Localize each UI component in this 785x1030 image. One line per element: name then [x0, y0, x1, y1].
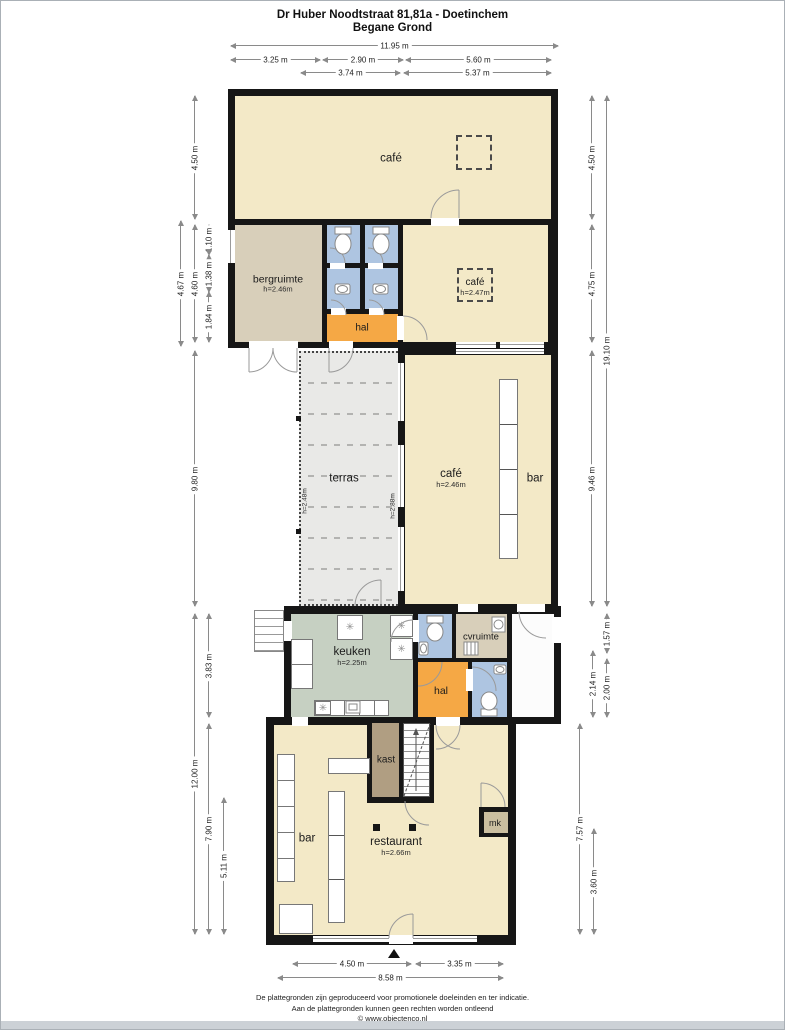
terras-post-2: [296, 529, 301, 534]
room-bath: [472, 662, 507, 717]
dim-left-terras: 9.80 m: [194, 351, 195, 606]
restaurant-column-2: [409, 824, 416, 831]
kitchen-counter-left: [291, 639, 313, 689]
dim-right-cafemid: 4.75 m: [591, 225, 592, 342]
door-gap-keuken-restaurant: [292, 717, 308, 726]
window-cafebar-left-3: [398, 527, 404, 591]
door-gap-corridor-right: [552, 617, 561, 643]
label-terras-height-left: h=2.48m: [302, 488, 309, 513]
page-title: Dr Huber Noodtstraat 81,81a - Doetinchem: [1, 9, 784, 21]
window-cafemid-bottom-2: [500, 342, 544, 348]
footer-disclaimer: De plattegronden zijn geproduceerd voor …: [1, 993, 784, 1025]
label-cvruimte: cvruimte: [463, 633, 499, 644]
corner-unit: [279, 904, 313, 934]
window-restaurant-front-2: [413, 936, 477, 942]
stove-icon: [390, 638, 413, 660]
dim-left-berg-outer: 4.67 m: [180, 221, 181, 346]
stove-icon: [390, 615, 413, 637]
dim-left-lower-total: 12.00 m: [194, 614, 195, 934]
door-gap-cafe-divider: [431, 218, 459, 226]
footer-line-1: De plattegronden zijn geproduceerd voor …: [1, 993, 784, 1004]
terras-post-1: [296, 416, 301, 421]
room-wc-right: [365, 225, 398, 263]
door-gap-corridor-ext: [517, 604, 545, 612]
dim-right-restaurant-inner: 3.60 m: [593, 829, 594, 934]
staircase-main: [403, 723, 430, 797]
door-gap-hal-terras: [329, 341, 353, 349]
label-keuken: keukenh=2.25m: [333, 646, 370, 668]
stove-icon: [315, 701, 331, 715]
dim-right-hal-outer: 2.14 m: [592, 651, 593, 717]
door-gap-vest-left: [331, 308, 346, 315]
dim-right-cafebar: 9.46 m: [591, 351, 592, 606]
dim-right-total: 19.10 m: [606, 96, 607, 606]
footer-line-2: Aan de plattegronden kunnen geen rechten…: [1, 1004, 784, 1015]
dim-right-restaurant: 7.57 m: [579, 724, 580, 934]
dim-left-restaurant: 7.90 m: [208, 724, 209, 934]
dim-top-seg5: 5.37 m: [404, 72, 551, 73]
dim-top-seg3: 5.60 m: [406, 59, 551, 60]
stove-icon: [337, 615, 363, 640]
door-gap-hal-bath: [466, 669, 473, 691]
restaurant-column-1: [373, 824, 380, 831]
label-hal-lower: hal: [434, 685, 448, 697]
label-bergruimte: bergruimteh=2.46m: [253, 274, 303, 295]
dim-top-total: 11.95 m: [231, 45, 558, 46]
window-left-bergruimte: [228, 230, 235, 263]
window-restaurant-front-1: [313, 936, 389, 942]
label-restaurant: restauranth=2.66m: [370, 836, 422, 858]
label-terras-height-right: h=2.88m: [390, 493, 397, 518]
floorplan-page: Dr Huber Noodtstraat 81,81a - Doetinchem…: [0, 0, 785, 1030]
room-wc-left: [327, 225, 360, 263]
door-gap-restaurant-entry: [389, 935, 413, 944]
door-gap-hal-cafemid: [397, 316, 404, 340]
door-gap-hal-restaurant: [436, 717, 460, 726]
label-cafe-top: café: [380, 152, 402, 165]
dim-bottom-total: 8.58 m: [278, 977, 503, 978]
page-bottom-edge: [1, 1021, 784, 1029]
window-cafebar-top: [456, 349, 544, 354]
window-cafebar-left-1: [398, 363, 404, 421]
dim-top-seg1: 3.25 m: [231, 59, 320, 60]
label-bar-mid: bar: [527, 472, 544, 485]
door-gap-vest-right: [369, 308, 384, 315]
door-gap-bergruimte: [249, 341, 298, 349]
dim-right-cafe: 4.50 m: [591, 96, 592, 219]
staircase-exterior: [254, 610, 284, 652]
label-mk: mk: [489, 818, 501, 828]
page-subtitle: Begane Grond: [1, 22, 784, 34]
door-gap-keuken-stair: [284, 621, 292, 641]
bar-shelf-left: [277, 754, 295, 882]
dim-bottom-seg2: 3.35 m: [416, 963, 503, 964]
bar-counter-cafe: [499, 379, 518, 559]
label-hal-top: hal: [355, 322, 368, 334]
restaurant-table: [328, 758, 370, 774]
dim-left-berg: 4.60 m: [194, 225, 195, 342]
dim-right-cv: 1.57 m: [606, 614, 607, 653]
dim-left-keuken: 3.83 m: [208, 614, 209, 717]
room-wc-vestibule-right: [365, 268, 398, 309]
room-corridor: [512, 614, 554, 717]
dim-left-cafe: 4.50 m: [194, 96, 195, 219]
door-gap-cafebar-cv: [458, 604, 478, 612]
room-wc-small: [418, 614, 452, 658]
label-terras: terras: [329, 472, 358, 485]
label-cafe-bar: caféh=2.46m: [436, 468, 465, 490]
dashed-opening-top: [456, 135, 492, 170]
dim-left-vest: 1.38 m: [208, 255, 209, 292]
dim-left-restaurant-inner: 5.11 m: [223, 798, 224, 934]
label-kast: kast: [377, 754, 395, 766]
dim-top-seg2: 2.90 m: [323, 59, 403, 60]
dim-left-wc: 1.10 m: [208, 225, 209, 255]
bar-counter-restaurant: [328, 791, 345, 923]
room-wc-vestibule-left: [327, 268, 360, 309]
door-gap-stall-left: [330, 263, 345, 269]
dim-left-hal: 1.84 m: [208, 292, 209, 342]
label-cafe-mid: caféh=2.47m: [460, 277, 489, 297]
window-cafemid-bottom-1: [456, 342, 496, 348]
label-bar-bottom: bar: [299, 832, 316, 845]
door-gap-stall-right: [368, 263, 383, 269]
north-arrow-icon: [388, 949, 400, 958]
window-cafebar-left-2: [398, 445, 404, 507]
dim-bottom-seg1: 4.50 m: [293, 963, 411, 964]
dim-top-seg4: 3.74 m: [301, 72, 400, 73]
dim-right-hal: 2.00 m: [606, 659, 607, 717]
